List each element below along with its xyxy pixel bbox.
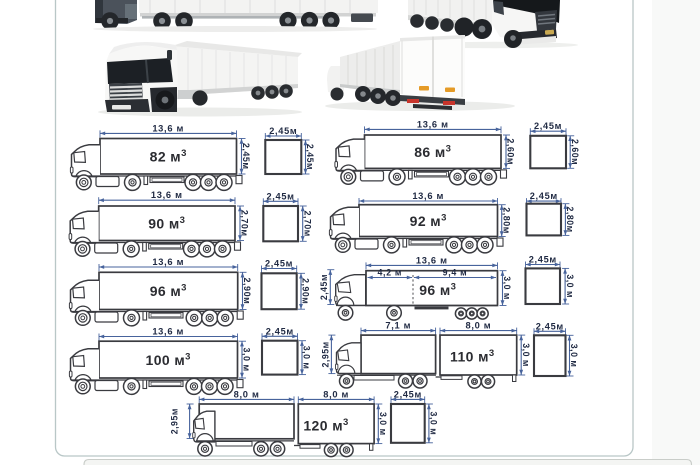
svg-text:13,6 м: 13,6 м	[417, 119, 449, 129]
svg-text:2,60м: 2,60м	[570, 139, 580, 165]
svg-text:2,80м: 2,80м	[501, 207, 511, 234]
svg-text:2,45м: 2,45м	[530, 191, 558, 201]
svg-text:9,4 м: 9,4 м	[443, 267, 468, 277]
svg-text:2,80м: 2,80м	[565, 207, 575, 233]
svg-text:2,45м: 2,45м	[319, 274, 329, 300]
svg-text:13,6 м: 13,6 м	[151, 190, 183, 200]
svg-text:13,6 м: 13,6 м	[416, 256, 448, 266]
svg-text:2,45м: 2,45м	[394, 389, 422, 399]
svg-text:13,6 м: 13,6 м	[152, 257, 184, 267]
svg-text:13,6 м: 13,6 м	[412, 191, 444, 201]
svg-text:3,0 м: 3,0 м	[378, 412, 388, 436]
svg-text:3,0 м: 3,0 м	[242, 348, 252, 372]
svg-text:2,90м: 2,90м	[242, 278, 252, 305]
svg-text:2,45м: 2,45м	[529, 255, 557, 265]
svg-text:2,70м: 2,70м	[240, 210, 250, 237]
svg-text:3,0 м: 3,0 м	[565, 274, 575, 298]
svg-text:13,6 м: 13,6 м	[152, 327, 184, 337]
svg-text:3,0 м: 3,0 м	[502, 276, 512, 300]
svg-text:3,0 м: 3,0 м	[521, 343, 531, 367]
svg-text:3,0 м: 3,0 м	[569, 344, 579, 368]
svg-text:2,45м: 2,45м	[534, 121, 562, 131]
svg-text:2,45м: 2,45м	[265, 259, 293, 269]
svg-text:8,0 м: 8,0 м	[465, 321, 491, 331]
svg-text:2,45м: 2,45м	[536, 321, 564, 331]
svg-text:7,1 м: 7,1 м	[385, 321, 411, 331]
svg-text:2,90м: 2,90м	[301, 278, 311, 304]
svg-text:8,0 м: 8,0 м	[234, 389, 260, 399]
svg-text:120 м3: 120 м3	[303, 417, 348, 434]
svg-text:2,45м: 2,45м	[305, 144, 315, 170]
svg-text:4,2 м: 4,2 м	[377, 267, 402, 277]
svg-text:2,60м: 2,60м	[506, 138, 516, 165]
svg-text:2,45м: 2,45м	[267, 191, 295, 201]
svg-text:2,45м: 2,45м	[266, 326, 294, 336]
svg-text:3,0 м: 3,0 м	[429, 412, 439, 436]
svg-text:110 м3: 110 м3	[450, 348, 495, 365]
svg-text:8,0 м: 8,0 м	[323, 389, 349, 399]
svg-text:2,45м: 2,45м	[241, 143, 251, 170]
svg-text:100 м3: 100 м3	[146, 351, 191, 368]
svg-text:13,6 м: 13,6 м	[152, 123, 184, 133]
svg-text:2,95м: 2,95м	[320, 341, 330, 367]
svg-text:2,45м: 2,45м	[269, 126, 297, 136]
svg-text:2,70м: 2,70м	[302, 211, 312, 237]
svg-text:2,95м: 2,95м	[169, 408, 179, 434]
svg-text:3,0 м: 3,0 м	[302, 346, 312, 370]
